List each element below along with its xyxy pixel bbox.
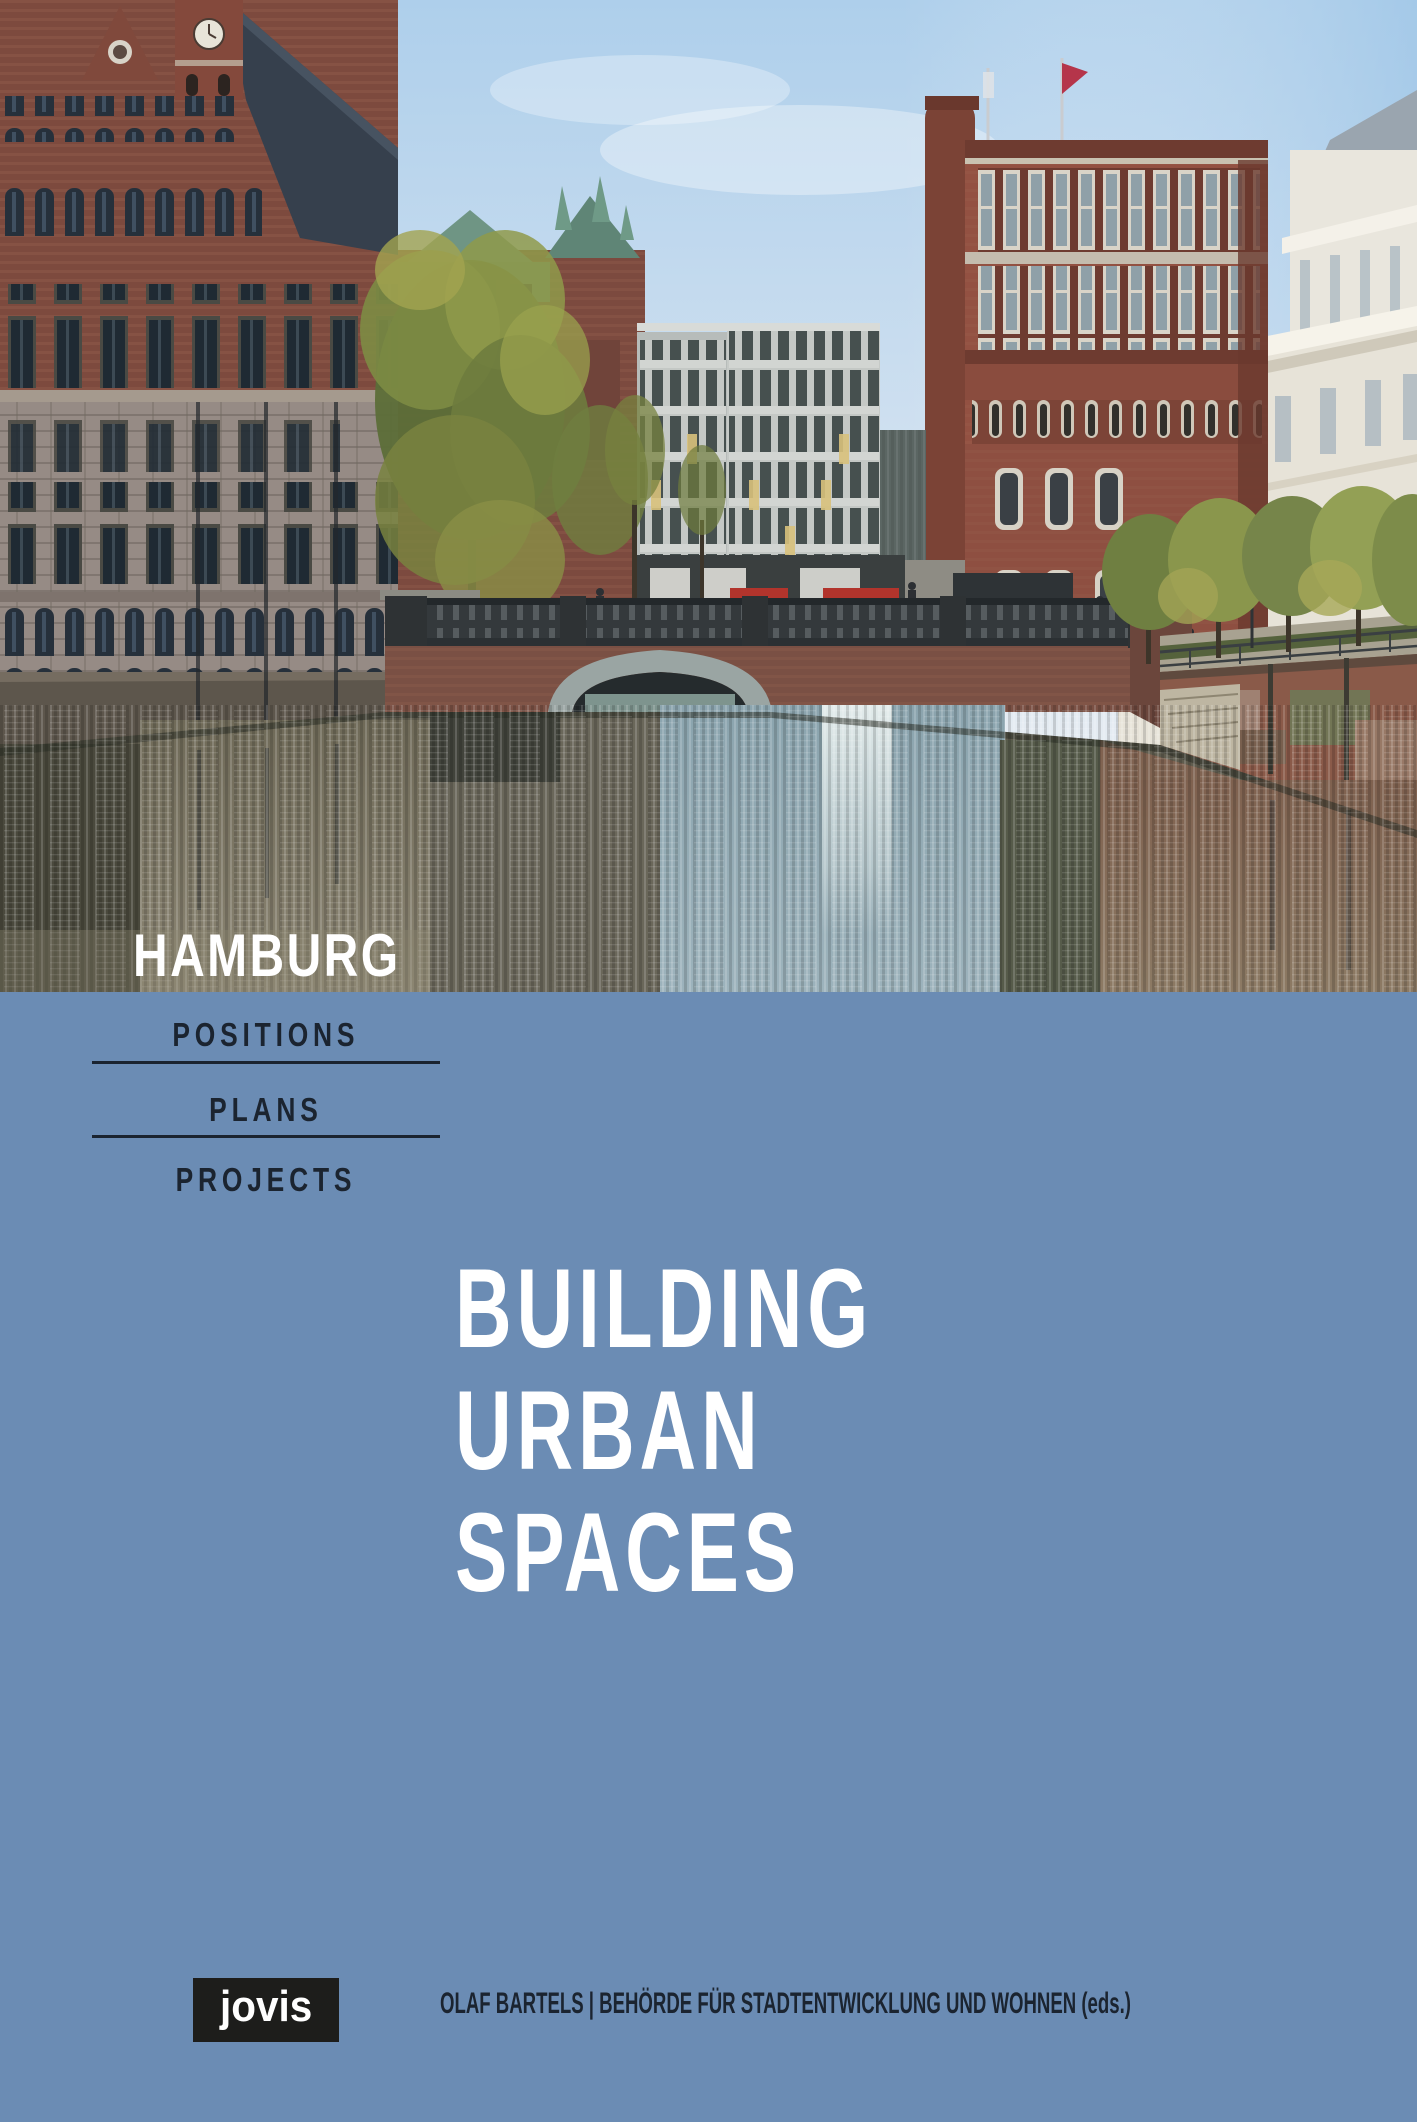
series-item-positions: POSITIONS xyxy=(92,1016,440,1054)
series-divider xyxy=(92,1061,440,1064)
series-item-plans: PLANS xyxy=(92,1091,440,1129)
publisher-logo-text: jovis xyxy=(220,1985,312,2029)
book-title-line1: BUILDING xyxy=(455,1248,873,1370)
book-title-line2: URBAN xyxy=(455,1370,873,1492)
series-divider xyxy=(92,1135,440,1138)
book-title: BUILDING URBAN SPACES xyxy=(455,1248,873,1614)
editors-line: OLAF BARTELS | BEHÖRDE FÜR STADTENTWICKL… xyxy=(440,1987,1131,2021)
cover-panel: POSITIONS PLANS PROJECTS BUILDING URBAN … xyxy=(0,992,1417,2122)
left-building xyxy=(0,0,398,750)
book-cover: { "cover": { "location": "HAMBURG", "ser… xyxy=(0,0,1417,2122)
series-item-projects: PROJECTS xyxy=(92,1161,440,1199)
imprint-row: jovis OLAF BARTELS | BEHÖRDE FÜR STADTEN… xyxy=(0,1978,1417,2042)
location-title: HAMBURG xyxy=(133,924,400,988)
cover-photo xyxy=(0,0,1417,992)
publisher-logo: jovis xyxy=(193,1978,339,2042)
book-title-line3: SPACES xyxy=(455,1492,873,1614)
